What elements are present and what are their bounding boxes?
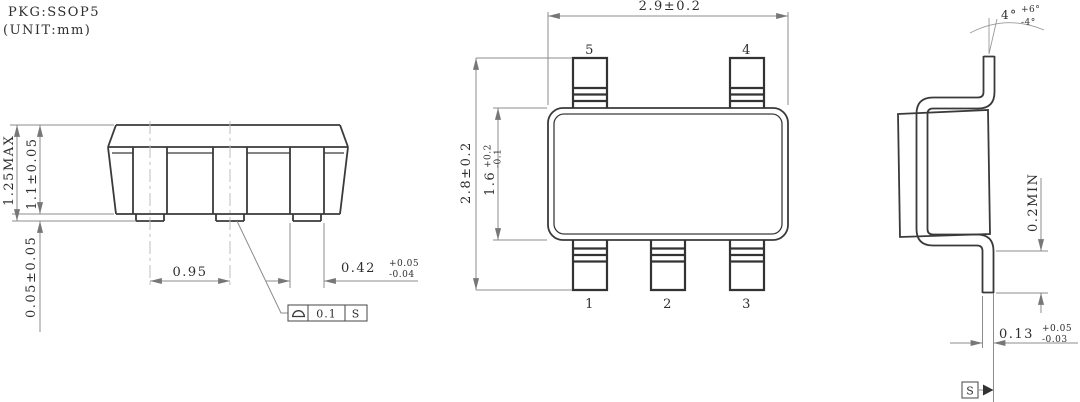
body-length-minus-tol: -0.1 [494,149,504,168]
pin-label-5: 5 [585,43,595,58]
foot-length-label: 0.2MIN [1026,173,1041,233]
datum-triangle-icon [983,385,994,396]
body-length-label: 1.6 +0.2 -0.1 [483,144,504,196]
lead-thickness-label: 0.13 +0.05 -0.03 [999,324,1072,345]
lead-thickness-minus-tol: -0.03 [1042,335,1068,345]
lead-centerlines [150,121,230,288]
pin-5 [573,58,607,108]
frame-datum-ref: S [352,308,361,321]
pin-3 [730,240,764,290]
angle-reference-lines [989,18,997,54]
lead-angle-plus-tol: +6° [1021,5,1040,15]
pin-label-4: 4 [742,43,752,58]
lead-width-plus-tol: +0.05 [389,259,419,269]
side-lead-outer-line [917,56,984,293]
front-view: 1.25MAX 1.1±0.05 0.05±0.05 0.95 0.42 +0.… [2,121,419,332]
drawing-svg: PKG:SSOP5 (UNIT:mm) 1.25MAX 1.1±0.05 0.0… [0,0,1080,402]
overall-width-label: 2.9±0.2 [639,0,702,14]
top-body-inner-outline [554,114,782,234]
frame-leader-line [237,221,288,313]
body-length-plus-tol: +0.2 [484,144,494,168]
overall-length-label: 2.8±0.2 [459,141,474,204]
side-lead-inner-line [928,56,995,293]
lead-thickness-plus-tol: +0.05 [1042,324,1072,334]
pin-label-1: 1 [585,297,595,312]
overall-height-label: 1.25MAX [2,135,17,206]
lead-width-value: 0.42 [341,261,376,276]
lead-width-minus-tol: -0.04 [389,270,415,280]
pin-4 [730,58,764,108]
top-view: 5 4 1 2 3 2.9±0.2 2.8±0.2 1.6 +0.2 -0.1 [459,0,788,312]
front-body-outline [108,125,348,214]
frame-tolerance-value: 0.1 [316,308,337,321]
front-dimension-lines [17,125,418,332]
body-length-value: 1.6 [483,171,498,196]
standoff-height-label: 0.05±0.05 [24,236,39,318]
package-outline-drawing: PKG:SSOP5 (UNIT:mm) 1.25MAX 1.1±0.05 0.0… [0,0,1080,402]
lead-angle-value: 4° [1001,8,1018,22]
title-block: PKG:SSOP5 (UNIT:mm) [3,5,100,38]
pin-label-2: 2 [663,297,673,312]
lead-angle-label: 4° +6° -4° [1001,5,1040,28]
lead-pitch-label: 0.95 [173,265,208,280]
lead-width-label: 0.42 +0.05 -0.04 [341,259,419,280]
pin-label-3: 3 [742,297,752,312]
lead-thickness-value: 0.13 [999,327,1034,342]
top-body-outer-outline [548,108,788,240]
package-name-label: PKG:SSOP5 [8,5,100,20]
lead-angle-minus-tol: -4° [1021,18,1036,28]
side-body-outline [898,110,990,237]
pin-2 [651,240,685,290]
body-height-label: 1.1±0.05 [25,137,40,210]
foot-length-extension-lines [996,251,1048,293]
side-view: 4° +6° -4° 0.2MIN 0.13 +0.05 -0.03 S [898,5,1078,402]
datum-label: S [966,385,975,398]
front-leads [133,147,324,221]
seating-datum: S [962,382,994,398]
unit-label: (UNIT:mm) [3,23,91,38]
pin-1 [573,240,607,290]
